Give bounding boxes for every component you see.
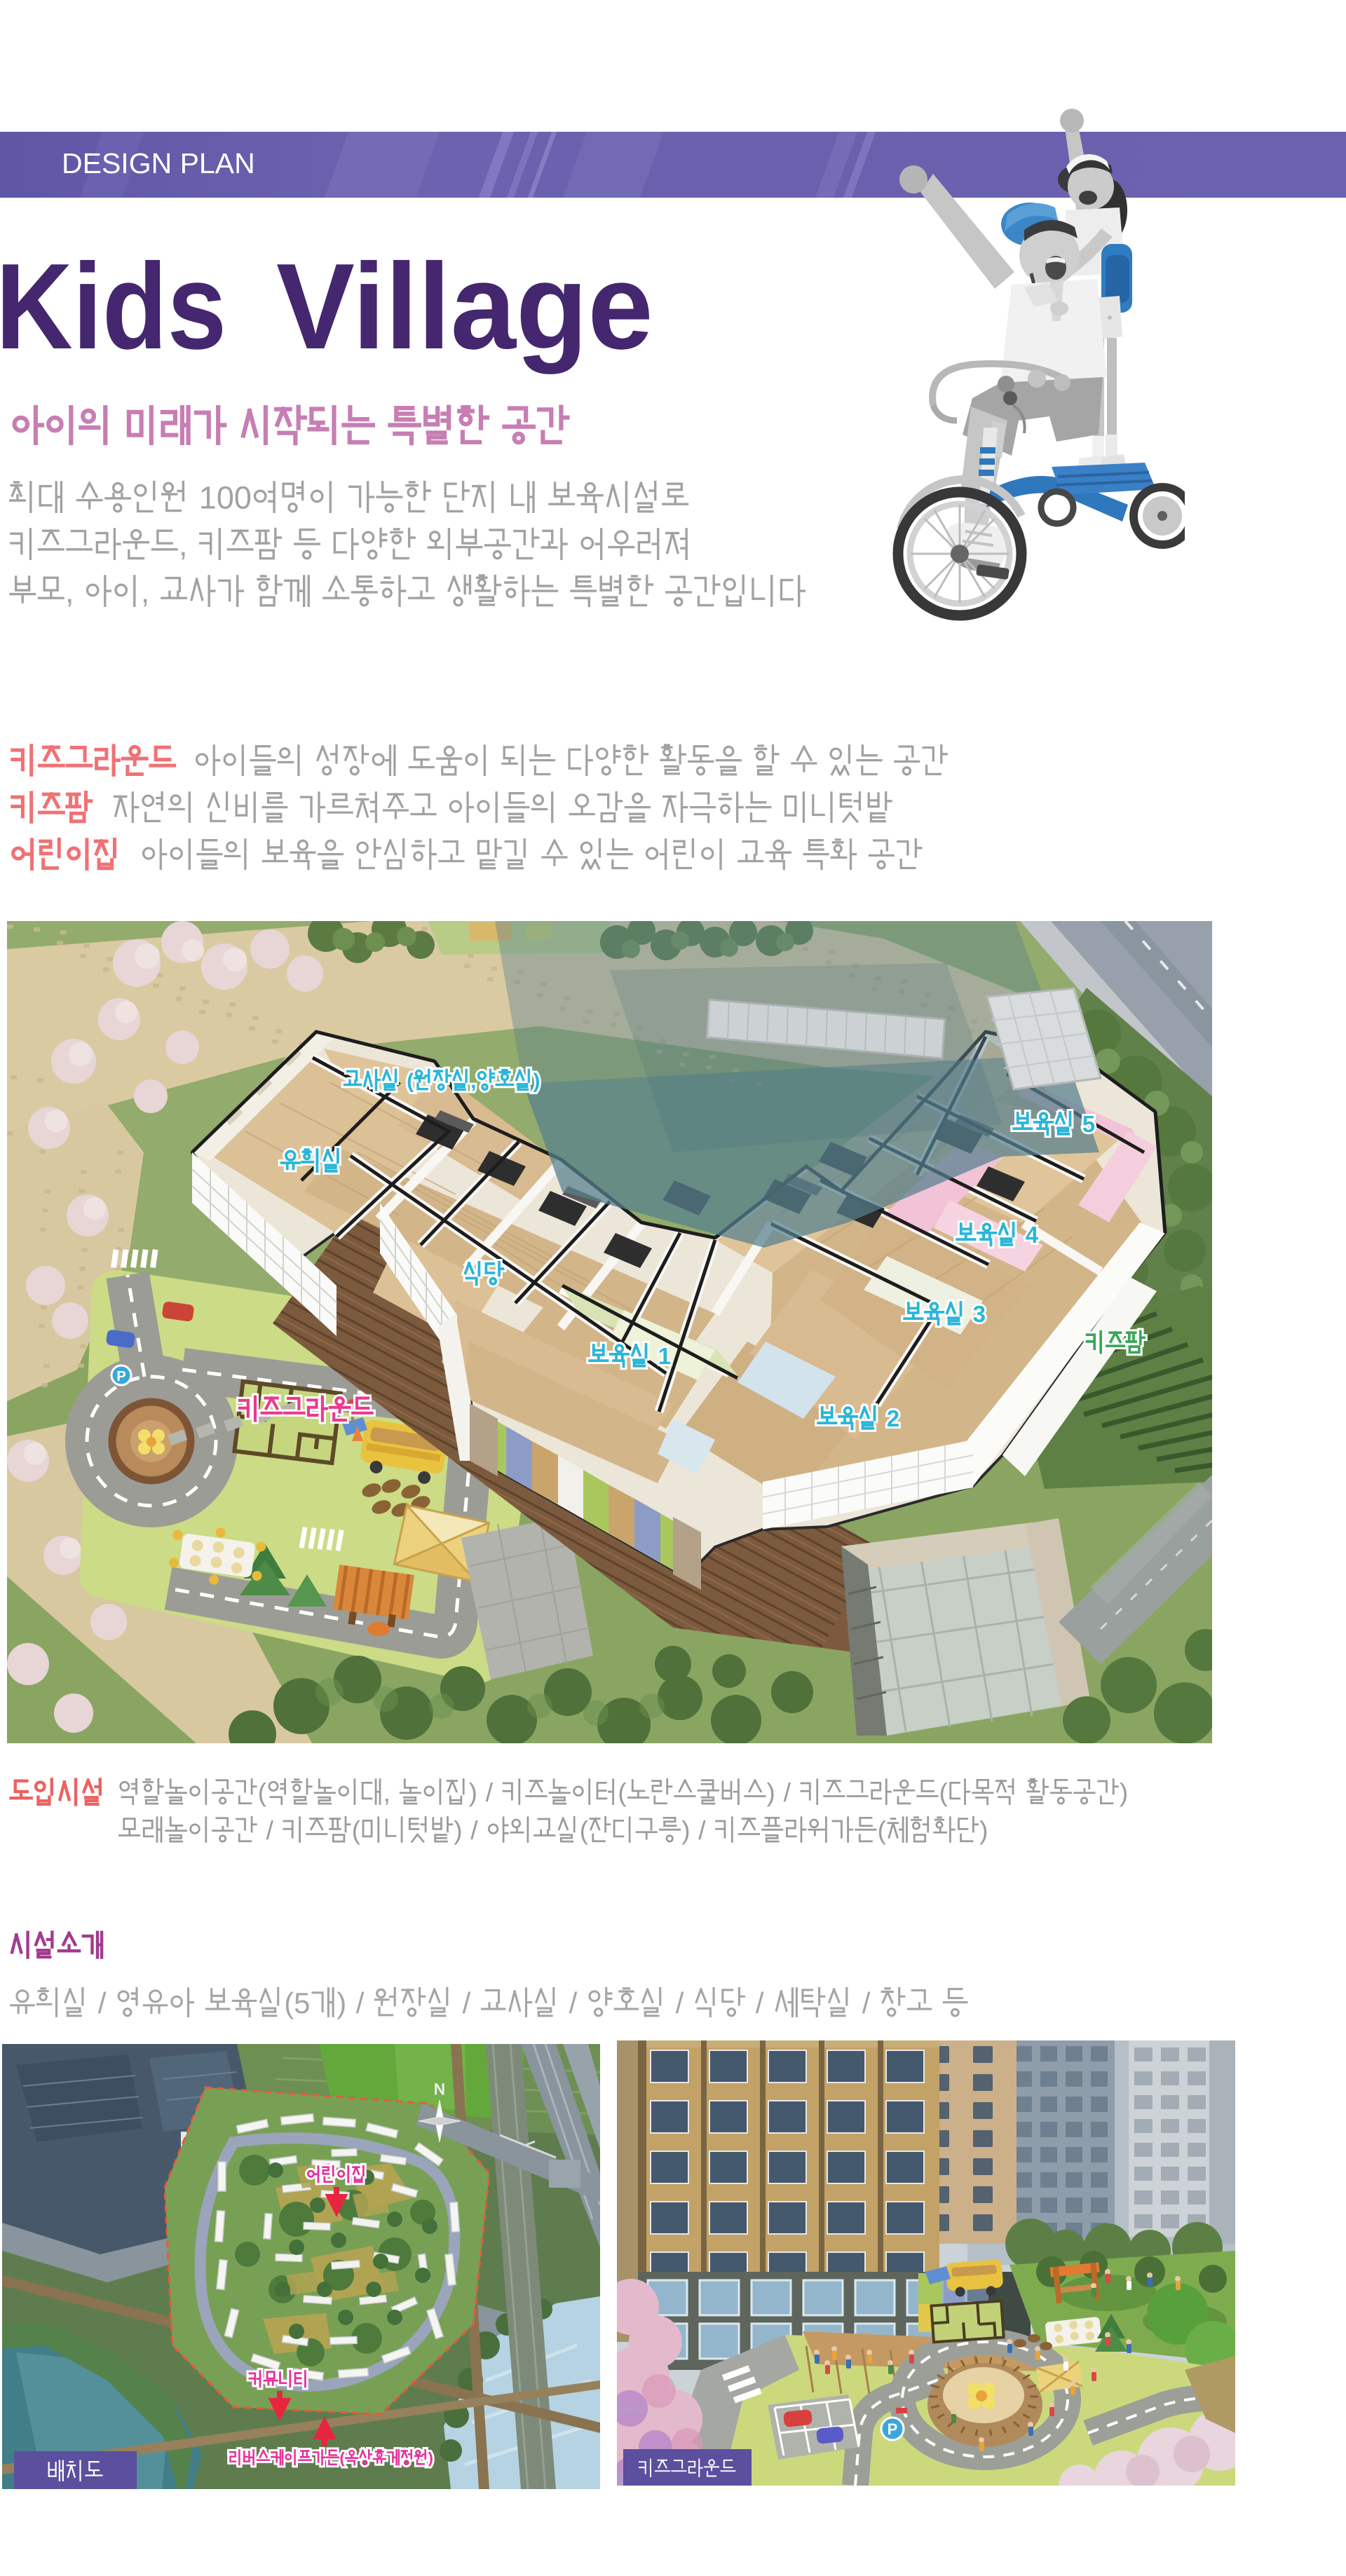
- svg-text:/: /: [676, 1986, 684, 2019]
- svg-text:/: /: [862, 1986, 871, 2019]
- svg-text:): ): [1120, 1778, 1128, 1807]
- svg-text:,: ,: [141, 574, 150, 610]
- svg-text:/: /: [756, 1986, 764, 2019]
- svg-text:1: 1: [658, 1343, 671, 1369]
- svg-text:): ): [533, 1070, 541, 1093]
- svg-text:(: (: [939, 1778, 949, 1807]
- svg-text:): ): [767, 1778, 775, 1807]
- svg-text:/: /: [470, 1816, 478, 1845]
- svg-text:100: 100: [199, 480, 252, 516]
- svg-text:(: (: [258, 1778, 267, 1807]
- svg-text:,: ,: [383, 1778, 390, 1807]
- svg-text:(: (: [618, 1778, 627, 1807]
- svg-text:(: (: [352, 1816, 361, 1845]
- svg-text:/: /: [356, 1986, 365, 2019]
- svg-text:,: ,: [65, 574, 74, 610]
- svg-text:2: 2: [887, 1405, 899, 1431]
- svg-text:/: /: [486, 1778, 494, 1807]
- svg-text:(: (: [407, 1070, 414, 1093]
- svg-text:4: 4: [1026, 1222, 1039, 1248]
- svg-text:3: 3: [973, 1301, 986, 1327]
- svg-text:): ): [428, 2449, 433, 2467]
- svg-text:N: N: [434, 2080, 445, 2098]
- svg-text:): ): [336, 1986, 346, 2019]
- svg-text:/: /: [569, 1986, 578, 2019]
- svg-text:/: /: [463, 1986, 471, 2019]
- svg-text:/: /: [266, 1816, 274, 1845]
- svg-text:): ): [681, 1816, 690, 1845]
- svg-text:/: /: [698, 1816, 706, 1845]
- svg-text:(: (: [340, 2449, 346, 2467]
- svg-text:(: (: [580, 1816, 589, 1845]
- svg-text:(5: (5: [284, 1986, 310, 2019]
- svg-text:): ): [979, 1816, 988, 1845]
- svg-text:P: P: [116, 1369, 125, 1384]
- svg-text:): ): [469, 1778, 477, 1807]
- svg-text:/: /: [784, 1778, 791, 1807]
- svg-text:,: ,: [179, 527, 188, 563]
- svg-text:5: 5: [1082, 1111, 1095, 1137]
- svg-text:/: /: [98, 1986, 107, 2019]
- svg-text:): ): [454, 1816, 462, 1845]
- svg-text:P: P: [888, 2420, 898, 2438]
- svg-text:(: (: [878, 1816, 887, 1845]
- svg-text:,: ,: [470, 1070, 476, 1093]
